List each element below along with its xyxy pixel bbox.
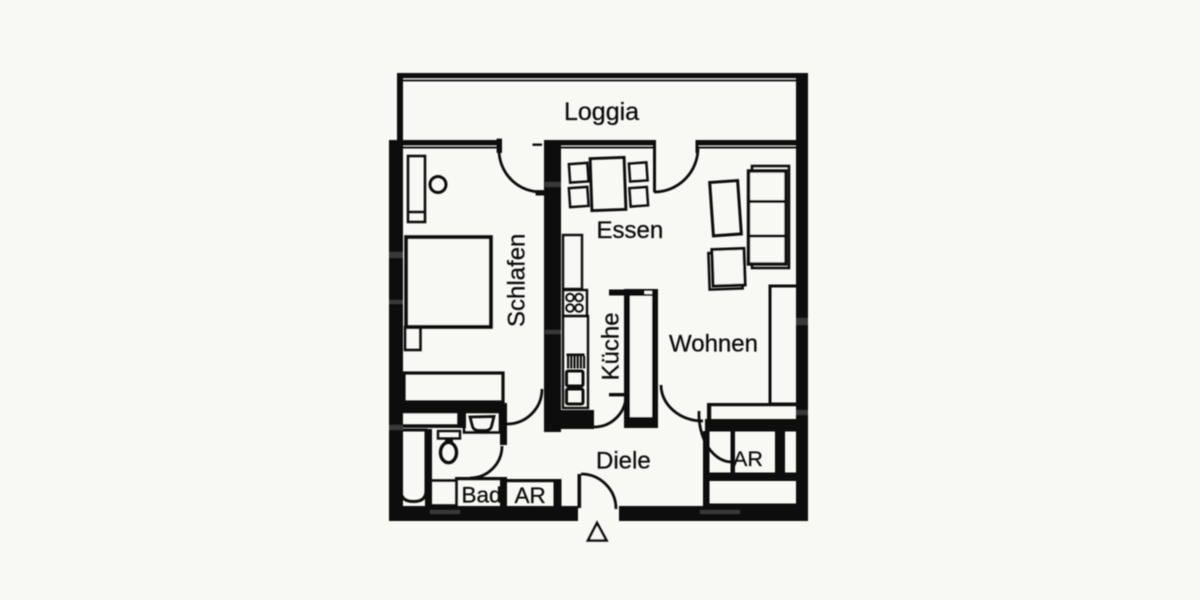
svg-text:Essen: Essen bbox=[597, 217, 664, 244]
svg-text:Loggia: Loggia bbox=[564, 98, 639, 126]
svg-text:Küche: Küche bbox=[598, 312, 625, 380]
svg-text:AR: AR bbox=[515, 483, 546, 508]
svg-text:Wohnen: Wohnen bbox=[669, 331, 758, 358]
svg-text:Diele: Diele bbox=[596, 448, 651, 475]
svg-text:Schlafen: Schlafen bbox=[504, 234, 531, 327]
svg-text:Bad: Bad bbox=[462, 483, 502, 508]
svg-text:AR: AR bbox=[733, 447, 763, 471]
